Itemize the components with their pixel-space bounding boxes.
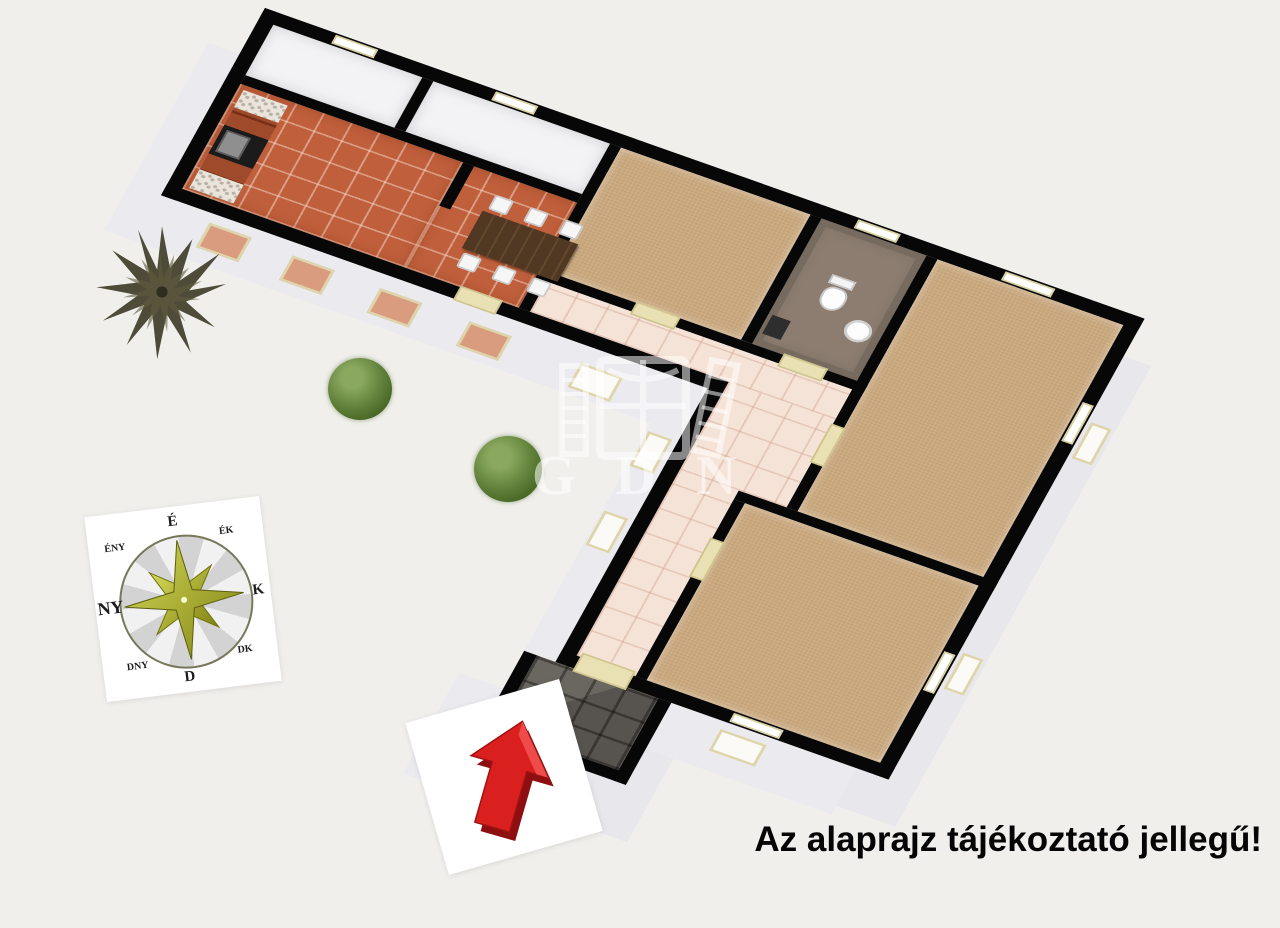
compass-label-sw: DNY (126, 661, 149, 674)
compass-label-ne: ÉK (219, 525, 235, 537)
compass-label-n: É (167, 514, 179, 530)
compass-rose-card: É ÉK K DK D DNY NY ÉNY (84, 496, 281, 702)
bush-icon (328, 358, 392, 420)
compass-label-w: NY (97, 597, 125, 618)
compass-label-e: K (252, 582, 265, 598)
compass-star-icon (112, 527, 257, 672)
disclaimer-text: Az alaprajz tájékoztató jellegű! (754, 820, 1262, 860)
pine-tree-icon (82, 212, 242, 372)
compass-label-se: DK (237, 644, 253, 656)
bush-icon (474, 436, 542, 502)
compass-label-s: D (184, 669, 197, 685)
floor-plan-scene: É ÉK K DK D DNY NY ÉNY GDN (0, 0, 1280, 889)
